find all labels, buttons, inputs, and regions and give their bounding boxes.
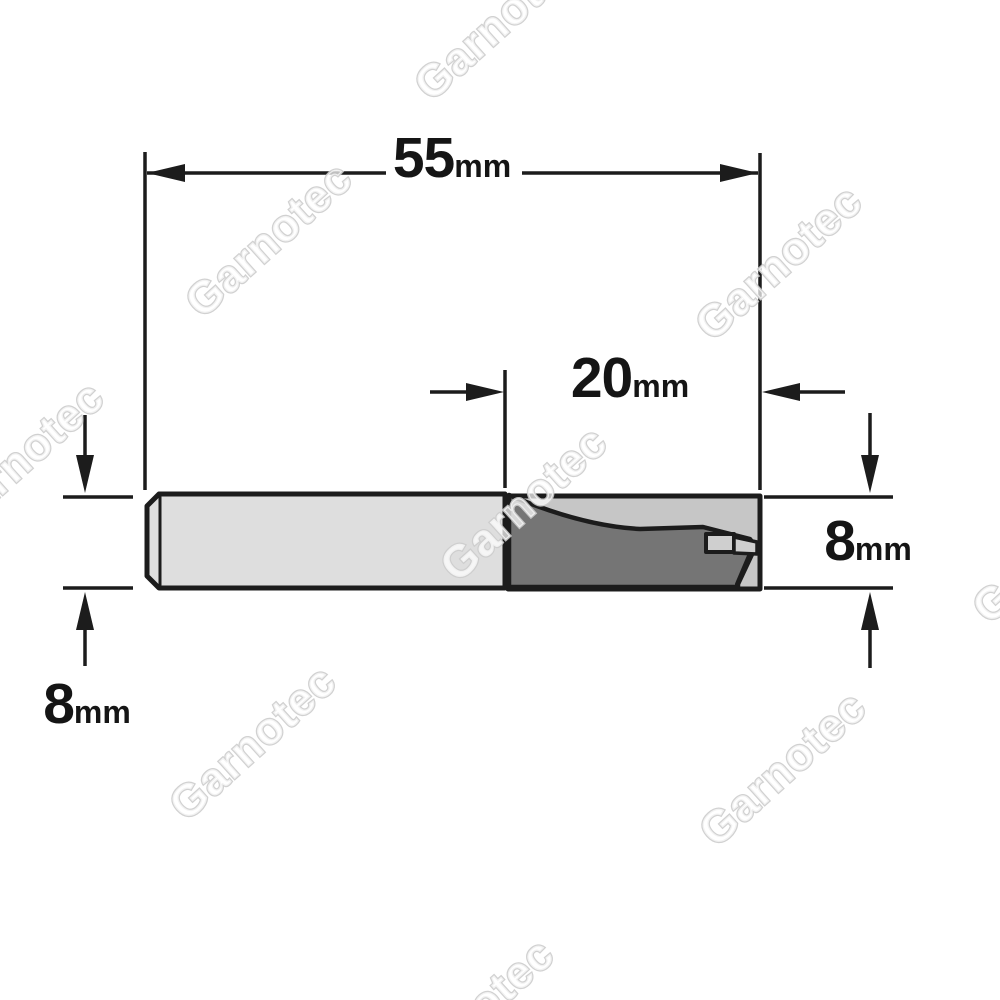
- arrowhead-icon: [147, 164, 185, 182]
- insert-tip-wedge: [734, 537, 757, 554]
- overall-length-unit: mm: [454, 148, 511, 184]
- watermark-text: Garnotec: [377, 928, 564, 1000]
- arrowhead-icon: [861, 455, 879, 493]
- cutting-length-label: 20mm: [571, 346, 689, 410]
- dimension-cutting-length: 20mm: [430, 346, 845, 488]
- arrowhead-icon: [861, 592, 879, 630]
- watermark-text: Garnotec: [689, 681, 876, 856]
- watermark-text: Garnotec: [175, 152, 362, 327]
- arrowhead-icon: [466, 383, 504, 401]
- watermark-text: Garnotec: [159, 655, 346, 830]
- dimension-shank-diameter: 8mm: [43, 415, 133, 736]
- diagram-canvas: 55mm 20mm: [0, 0, 1000, 1000]
- overall-length-value: 55: [393, 126, 455, 190]
- watermark-text: Garnotec: [685, 175, 872, 350]
- overall-length-label: 55mm: [393, 126, 511, 190]
- cutting-length-unit: mm: [632, 368, 689, 404]
- cutting-diameter-label: 8mm: [824, 509, 912, 573]
- watermark-text: Garnotec: [962, 458, 1000, 633]
- watermark-text: Garnotec: [0, 371, 114, 546]
- arrowhead-icon: [720, 164, 758, 182]
- dimension-overall-length: 55mm: [145, 126, 760, 490]
- arrowhead-icon: [76, 592, 94, 630]
- carbide-insert: [706, 534, 734, 552]
- shank-diameter-unit: mm: [74, 694, 131, 730]
- watermark-text: Garnotec: [404, 0, 591, 110]
- shank-diameter-value: 8: [43, 672, 74, 736]
- technical-drawing: 55mm 20mm: [0, 0, 1000, 1000]
- shank-diameter-label: 8mm: [43, 672, 131, 736]
- arrowhead-icon: [762, 383, 800, 401]
- dimension-cutting-diameter: 8mm: [764, 413, 912, 668]
- cutting-diameter-unit: mm: [855, 531, 912, 567]
- arrowhead-icon: [76, 455, 94, 493]
- cutting-diameter-value: 8: [824, 509, 855, 573]
- cutting-length-value: 20: [571, 346, 632, 410]
